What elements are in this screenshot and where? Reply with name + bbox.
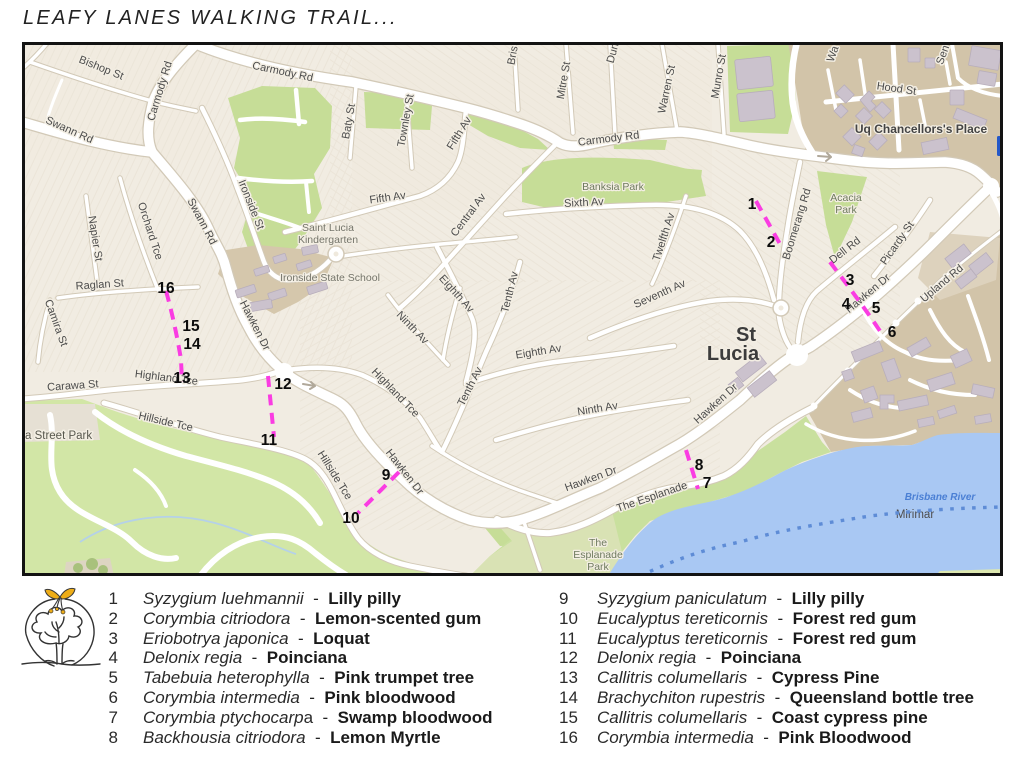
svg-text:13: 13 bbox=[173, 370, 191, 387]
svg-text:Uq Chancellors's Place: Uq Chancellors's Place bbox=[855, 122, 988, 136]
svg-text:12: 12 bbox=[274, 376, 291, 393]
svg-text:Ironside State School: Ironside State School bbox=[280, 272, 380, 284]
svg-text:Park: Park bbox=[835, 204, 857, 216]
svg-text:14: 14 bbox=[183, 336, 201, 353]
svg-text:6: 6 bbox=[888, 324, 897, 341]
svg-text:Lucia: Lucia bbox=[707, 343, 760, 365]
svg-text:Park: Park bbox=[587, 561, 609, 573]
svg-text:1: 1 bbox=[748, 196, 757, 213]
svg-text:7: 7 bbox=[703, 475, 712, 492]
svg-text:Brisbane River: Brisbane River bbox=[905, 492, 977, 503]
svg-text:3: 3 bbox=[846, 272, 855, 289]
svg-text:8: 8 bbox=[695, 457, 704, 474]
svg-text:Banksia Park: Banksia Park bbox=[582, 181, 645, 193]
svg-text:9: 9 bbox=[382, 467, 391, 484]
svg-text:The: The bbox=[589, 537, 607, 549]
svg-text:15: 15 bbox=[182, 318, 200, 335]
svg-text:Kindergarten: Kindergarten bbox=[298, 234, 358, 246]
svg-text:10: 10 bbox=[342, 510, 359, 527]
svg-text:16: 16 bbox=[157, 280, 175, 297]
svg-text:5: 5 bbox=[872, 300, 881, 317]
svg-text:11: 11 bbox=[261, 432, 278, 449]
svg-text:Saint Lucia: Saint Lucia bbox=[302, 222, 354, 234]
svg-text:Sixth Av: Sixth Av bbox=[564, 196, 605, 210]
svg-text:a Street Park: a Street Park bbox=[25, 430, 92, 442]
svg-text:Acacia: Acacia bbox=[830, 192, 862, 204]
svg-text:2: 2 bbox=[767, 234, 776, 251]
svg-text:4: 4 bbox=[842, 296, 851, 313]
svg-text:Esplanade: Esplanade bbox=[573, 549, 623, 561]
